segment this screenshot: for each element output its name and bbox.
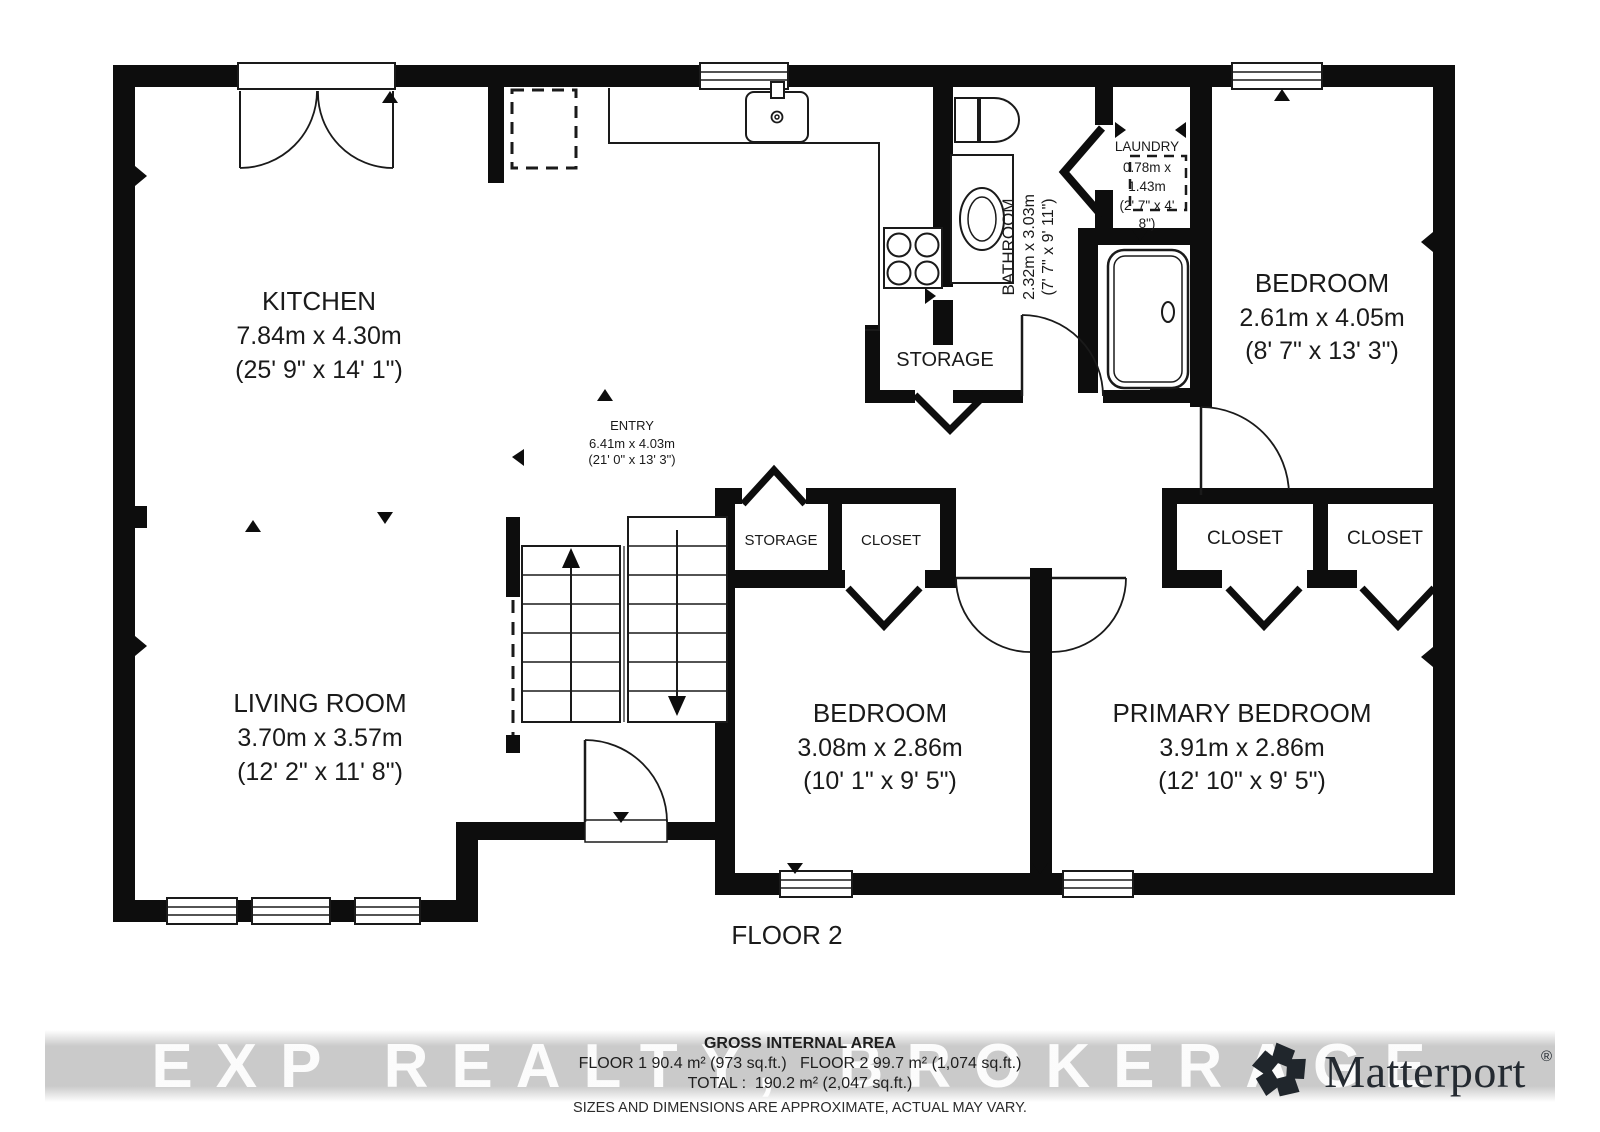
bedroom-top-door — [1201, 407, 1289, 495]
window — [355, 898, 420, 924]
arrow-icon — [382, 91, 398, 103]
storage-kitchen-label: STORAGE — [896, 349, 993, 371]
bedroom-mid-label: BEDROOM 3.08m x 2.86m (10' 1" x 9' 5") — [797, 698, 962, 795]
vestibule-door — [585, 740, 667, 842]
entry-label: ENTRY 6.41m x 4.03m (21' 0" x 13' 3") — [588, 418, 675, 467]
arrow-icon — [1274, 89, 1290, 101]
room-dim-m: 2.32m x 3.03m — [1021, 194, 1038, 300]
arrow-icon — [245, 520, 261, 532]
arrow-icon — [1421, 647, 1433, 667]
primary-bedroom-label: PRIMARY BEDROOM 3.91m x 2.86m (12' 10" x… — [1112, 698, 1371, 795]
toilet-icon — [955, 98, 1019, 142]
room-dim: 1.43m — [1128, 179, 1166, 194]
arrow-icon — [512, 449, 524, 466]
arrow-icon — [135, 636, 147, 656]
closet-b-label: CLOSET — [1347, 528, 1423, 549]
bedroom-mid-door — [956, 578, 1030, 652]
closet-hall-door — [848, 588, 920, 626]
matterport-icon — [1249, 1040, 1311, 1102]
room-dim-m: 3.70m x 3.57m — [237, 724, 402, 752]
room-dim-ft: (7' 7" x 9' 11") — [1040, 198, 1057, 295]
room-dim-ft: (25' 9" x 14' 1") — [235, 356, 403, 384]
arrow-icon — [1115, 122, 1126, 138]
kitchen-label: KITCHEN 7.84m x 4.30m (25' 9" x 14' 1") — [235, 286, 403, 384]
bathroom-label: BATHROOM 2.32m x 3.03m (7' 7" x 9' 11") — [999, 194, 1057, 300]
room-dim: (2' 7" x 4' — [1120, 198, 1175, 213]
room-name: KITCHEN — [262, 286, 376, 316]
closet-b-door — [1362, 588, 1434, 626]
window — [167, 898, 237, 924]
laundry-label: LAUNDRY 0.78m x 1.43m (2' 7" x 4' 8") — [1115, 139, 1179, 231]
room-dim-ft: (10' 1" x 9' 5") — [803, 767, 957, 795]
window — [780, 871, 852, 897]
room-name: ENTRY — [610, 418, 654, 433]
room-name: LAUNDRY — [1115, 139, 1179, 154]
room-dim-m: 7.84m x 4.30m — [236, 322, 401, 350]
room-dim-m: 3.08m x 2.86m — [797, 734, 962, 762]
room-dim-ft: (12' 10" x 9' 5") — [1158, 767, 1326, 795]
kitchen-counter — [609, 88, 879, 330]
arrow-icon — [1421, 232, 1433, 252]
living-room-label: LIVING ROOM 3.70m x 3.57m (12' 2" x 11' … — [233, 688, 406, 786]
room-dim-ft: (8' 7" x 13' 3") — [1245, 337, 1399, 365]
floor-title: FLOOR 2 — [731, 920, 842, 950]
kitchen-appliance-dashed — [512, 90, 576, 168]
arrow-icon — [597, 389, 613, 401]
room-dim-m: 6.41m x 4.03m — [589, 436, 675, 451]
window — [252, 898, 330, 924]
arrow-icon — [1175, 122, 1186, 138]
room-dim-ft: (12' 2" x 11' 8") — [237, 758, 403, 786]
closet-hall-label: CLOSET — [861, 532, 921, 549]
room-name: LIVING ROOM — [233, 688, 406, 718]
room-dim-m: 3.91m x 2.86m — [1159, 734, 1324, 762]
arrow-icon — [377, 512, 393, 524]
storage-hall-door — [743, 470, 805, 504]
storage-hall-label: STORAGE — [744, 532, 817, 549]
brand-name: Matterport — [1324, 1045, 1526, 1098]
bedroom-top-label: BEDROOM 2.61m x 4.05m (8' 7" x 13' 3") — [1239, 268, 1404, 365]
room-dim: 8") — [1139, 216, 1156, 231]
stove-icon — [884, 228, 942, 288]
closet-a-label: CLOSET — [1207, 528, 1283, 549]
room-name: BATHROOM — [999, 199, 1018, 296]
room-dim: 0.78m x — [1123, 160, 1171, 175]
floorplan-drawing: KITCHEN 7.84m x 4.30m (25' 9" x 14' 1") … — [0, 0, 1600, 1132]
kitchen-fixtures — [512, 82, 942, 330]
floorplan-page: KITCHEN 7.84m x 4.30m (25' 9" x 14' 1") … — [0, 0, 1600, 1132]
matterport-logo: Matterport ® — [1249, 1040, 1552, 1102]
arrow-icon — [135, 166, 147, 186]
window — [1063, 871, 1133, 897]
room-name: BEDROOM — [1255, 268, 1389, 298]
closet-a-door — [1228, 588, 1300, 626]
registered-mark: ® — [1541, 1048, 1552, 1065]
primary-bedroom-door — [1052, 578, 1126, 652]
bathtub-icon — [1108, 250, 1188, 388]
window — [1232, 63, 1322, 89]
room-dim-m: 2.61m x 4.05m — [1239, 304, 1404, 332]
room-dim-ft: (21' 0" x 13' 3") — [588, 452, 675, 467]
room-name: BEDROOM — [813, 698, 947, 728]
room-name: PRIMARY BEDROOM — [1112, 698, 1371, 728]
kitchen-sink-icon — [746, 82, 808, 142]
french-door — [238, 63, 395, 168]
staircase — [513, 517, 727, 735]
